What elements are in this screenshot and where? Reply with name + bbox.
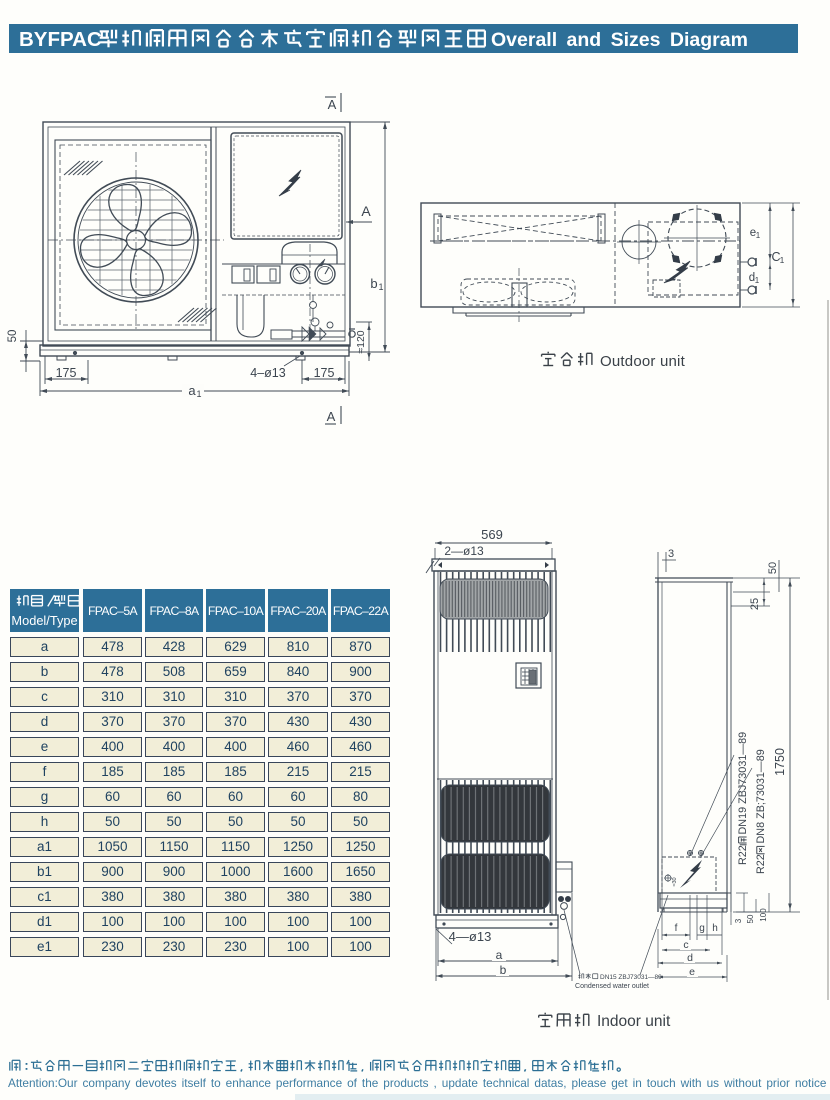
svg-text:d: d: [687, 952, 693, 964]
svg-text:3: 3: [734, 918, 743, 923]
svg-text:569: 569: [481, 527, 503, 542]
svg-text:1750: 1750: [773, 748, 787, 776]
svg-text:f: f: [675, 923, 678, 934]
svg-text:A: A: [361, 203, 371, 219]
svg-text:50: 50: [767, 562, 779, 574]
svg-text:100: 100: [759, 908, 768, 922]
svg-text:1: 1: [756, 231, 761, 240]
svg-text:2—ø13: 2—ø13: [444, 544, 484, 558]
svg-text:3: 3: [668, 548, 674, 560]
svg-text:h: h: [712, 923, 718, 934]
svg-text:50: 50: [746, 914, 755, 923]
svg-text:1: 1: [378, 282, 383, 292]
svg-text:4—ø13: 4—ø13: [449, 929, 492, 944]
svg-text:a: a: [496, 948, 503, 962]
svg-text:Outdoor unit: Outdoor unit: [600, 353, 686, 370]
svg-text:DN15 ZBJ73031—89: DN15 ZBJ73031—89: [600, 974, 662, 981]
svg-text:Condensed water outlet: Condensed water outlet: [575, 983, 649, 990]
svg-text:A: A: [327, 409, 336, 424]
svg-text:≈120: ≈120: [355, 330, 367, 353]
svg-text:R22: R22: [737, 845, 749, 865]
svg-text:DN8 ZB;73031—89: DN8 ZB;73031—89: [755, 749, 767, 843]
svg-text:e: e: [689, 966, 695, 978]
svg-text:175: 175: [56, 366, 77, 380]
svg-text:25: 25: [749, 598, 761, 610]
svg-text:R22: R22: [755, 854, 767, 874]
svg-text:4–ø13: 4–ø13: [250, 366, 285, 380]
svg-text:1: 1: [755, 276, 760, 285]
svg-text:Indoor unit: Indoor unit: [597, 1013, 671, 1030]
svg-text:a: a: [188, 383, 196, 398]
svg-text:175: 175: [314, 366, 335, 380]
svg-text:b: b: [500, 963, 507, 977]
svg-text:1: 1: [780, 255, 785, 265]
svg-text:50: 50: [7, 330, 19, 343]
svg-text:b: b: [370, 276, 377, 291]
svg-text:≈30: ≈30: [672, 877, 678, 886]
svg-text:c: c: [683, 939, 688, 951]
svg-text:1: 1: [196, 389, 201, 399]
svg-text:A: A: [328, 97, 337, 112]
svg-text:g: g: [699, 923, 705, 934]
